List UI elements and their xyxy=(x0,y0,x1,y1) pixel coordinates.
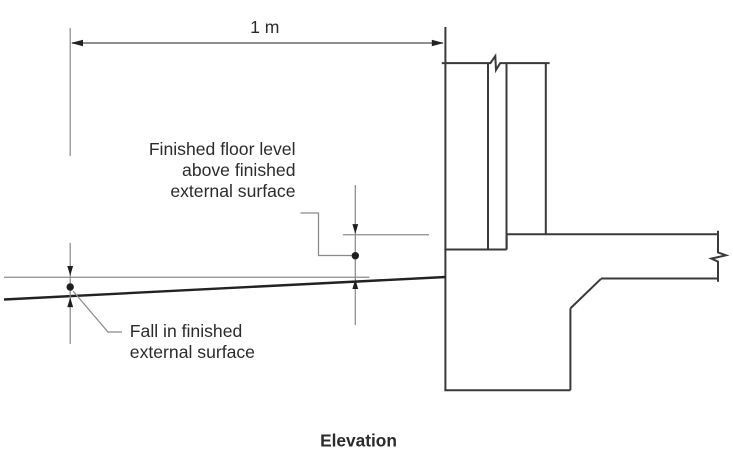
svg-text:external surface: external surface xyxy=(170,181,295,201)
svg-text:Elevation: Elevation xyxy=(320,431,397,451)
svg-text:Finished floor level: Finished floor level xyxy=(149,139,296,159)
svg-text:1 m: 1 m xyxy=(250,17,279,37)
svg-text:external surface: external surface xyxy=(130,342,255,362)
svg-text:above finished: above finished xyxy=(182,160,295,180)
svg-text:Fall in finished: Fall in finished xyxy=(130,321,242,341)
